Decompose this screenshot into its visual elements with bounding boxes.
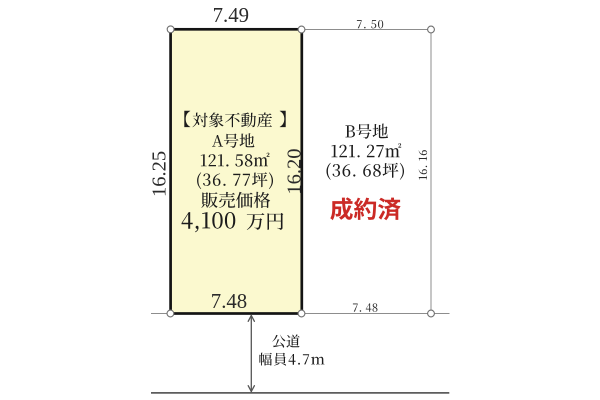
svg-text:16.25: 16.25 (149, 151, 171, 197)
svg-text:16.20: 16.20 (284, 148, 306, 194)
svg-text:7.49: 7.49 (213, 4, 249, 27)
svg-text:7.48: 7.48 (211, 290, 247, 313)
